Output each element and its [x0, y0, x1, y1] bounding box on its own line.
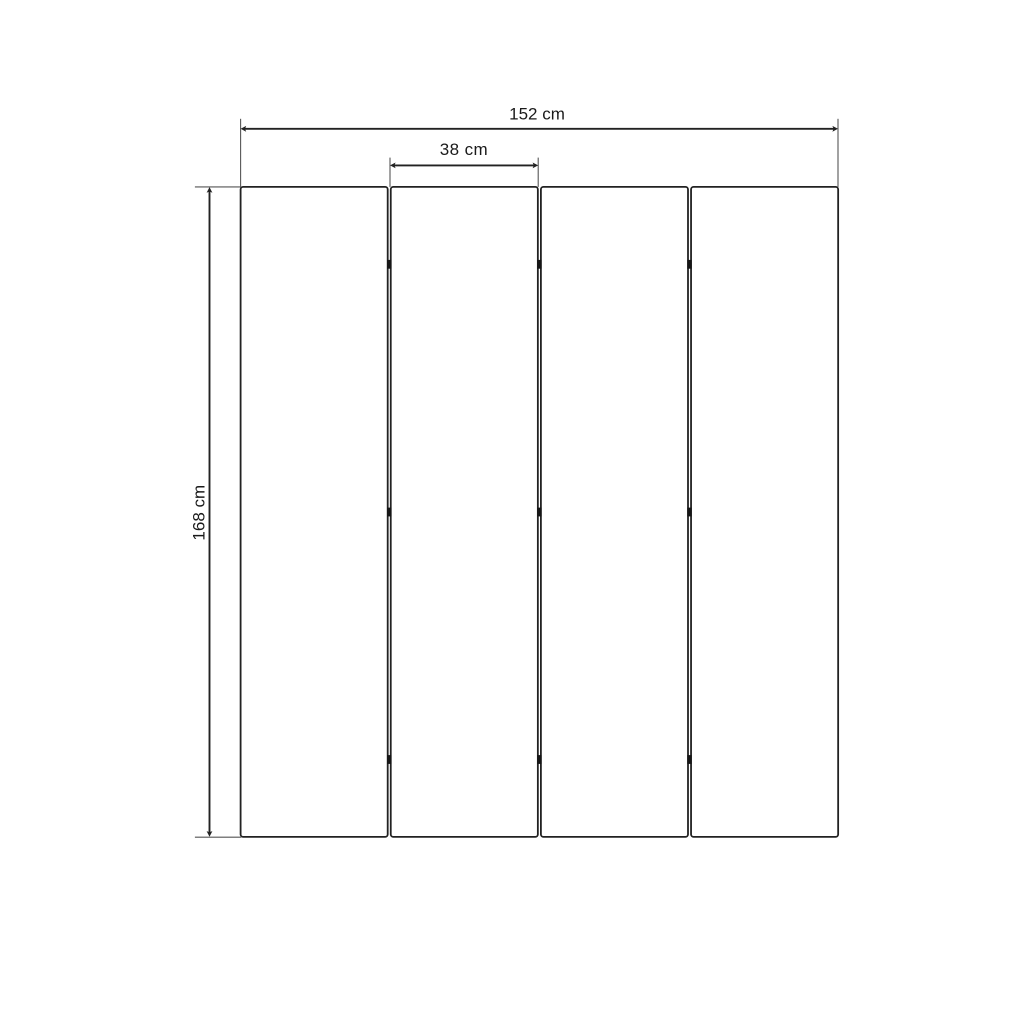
svg-text:152 cm: 152 cm: [509, 104, 565, 123]
svg-text:38 cm: 38 cm: [440, 140, 488, 159]
svg-text:168 cm: 168 cm: [190, 485, 209, 541]
